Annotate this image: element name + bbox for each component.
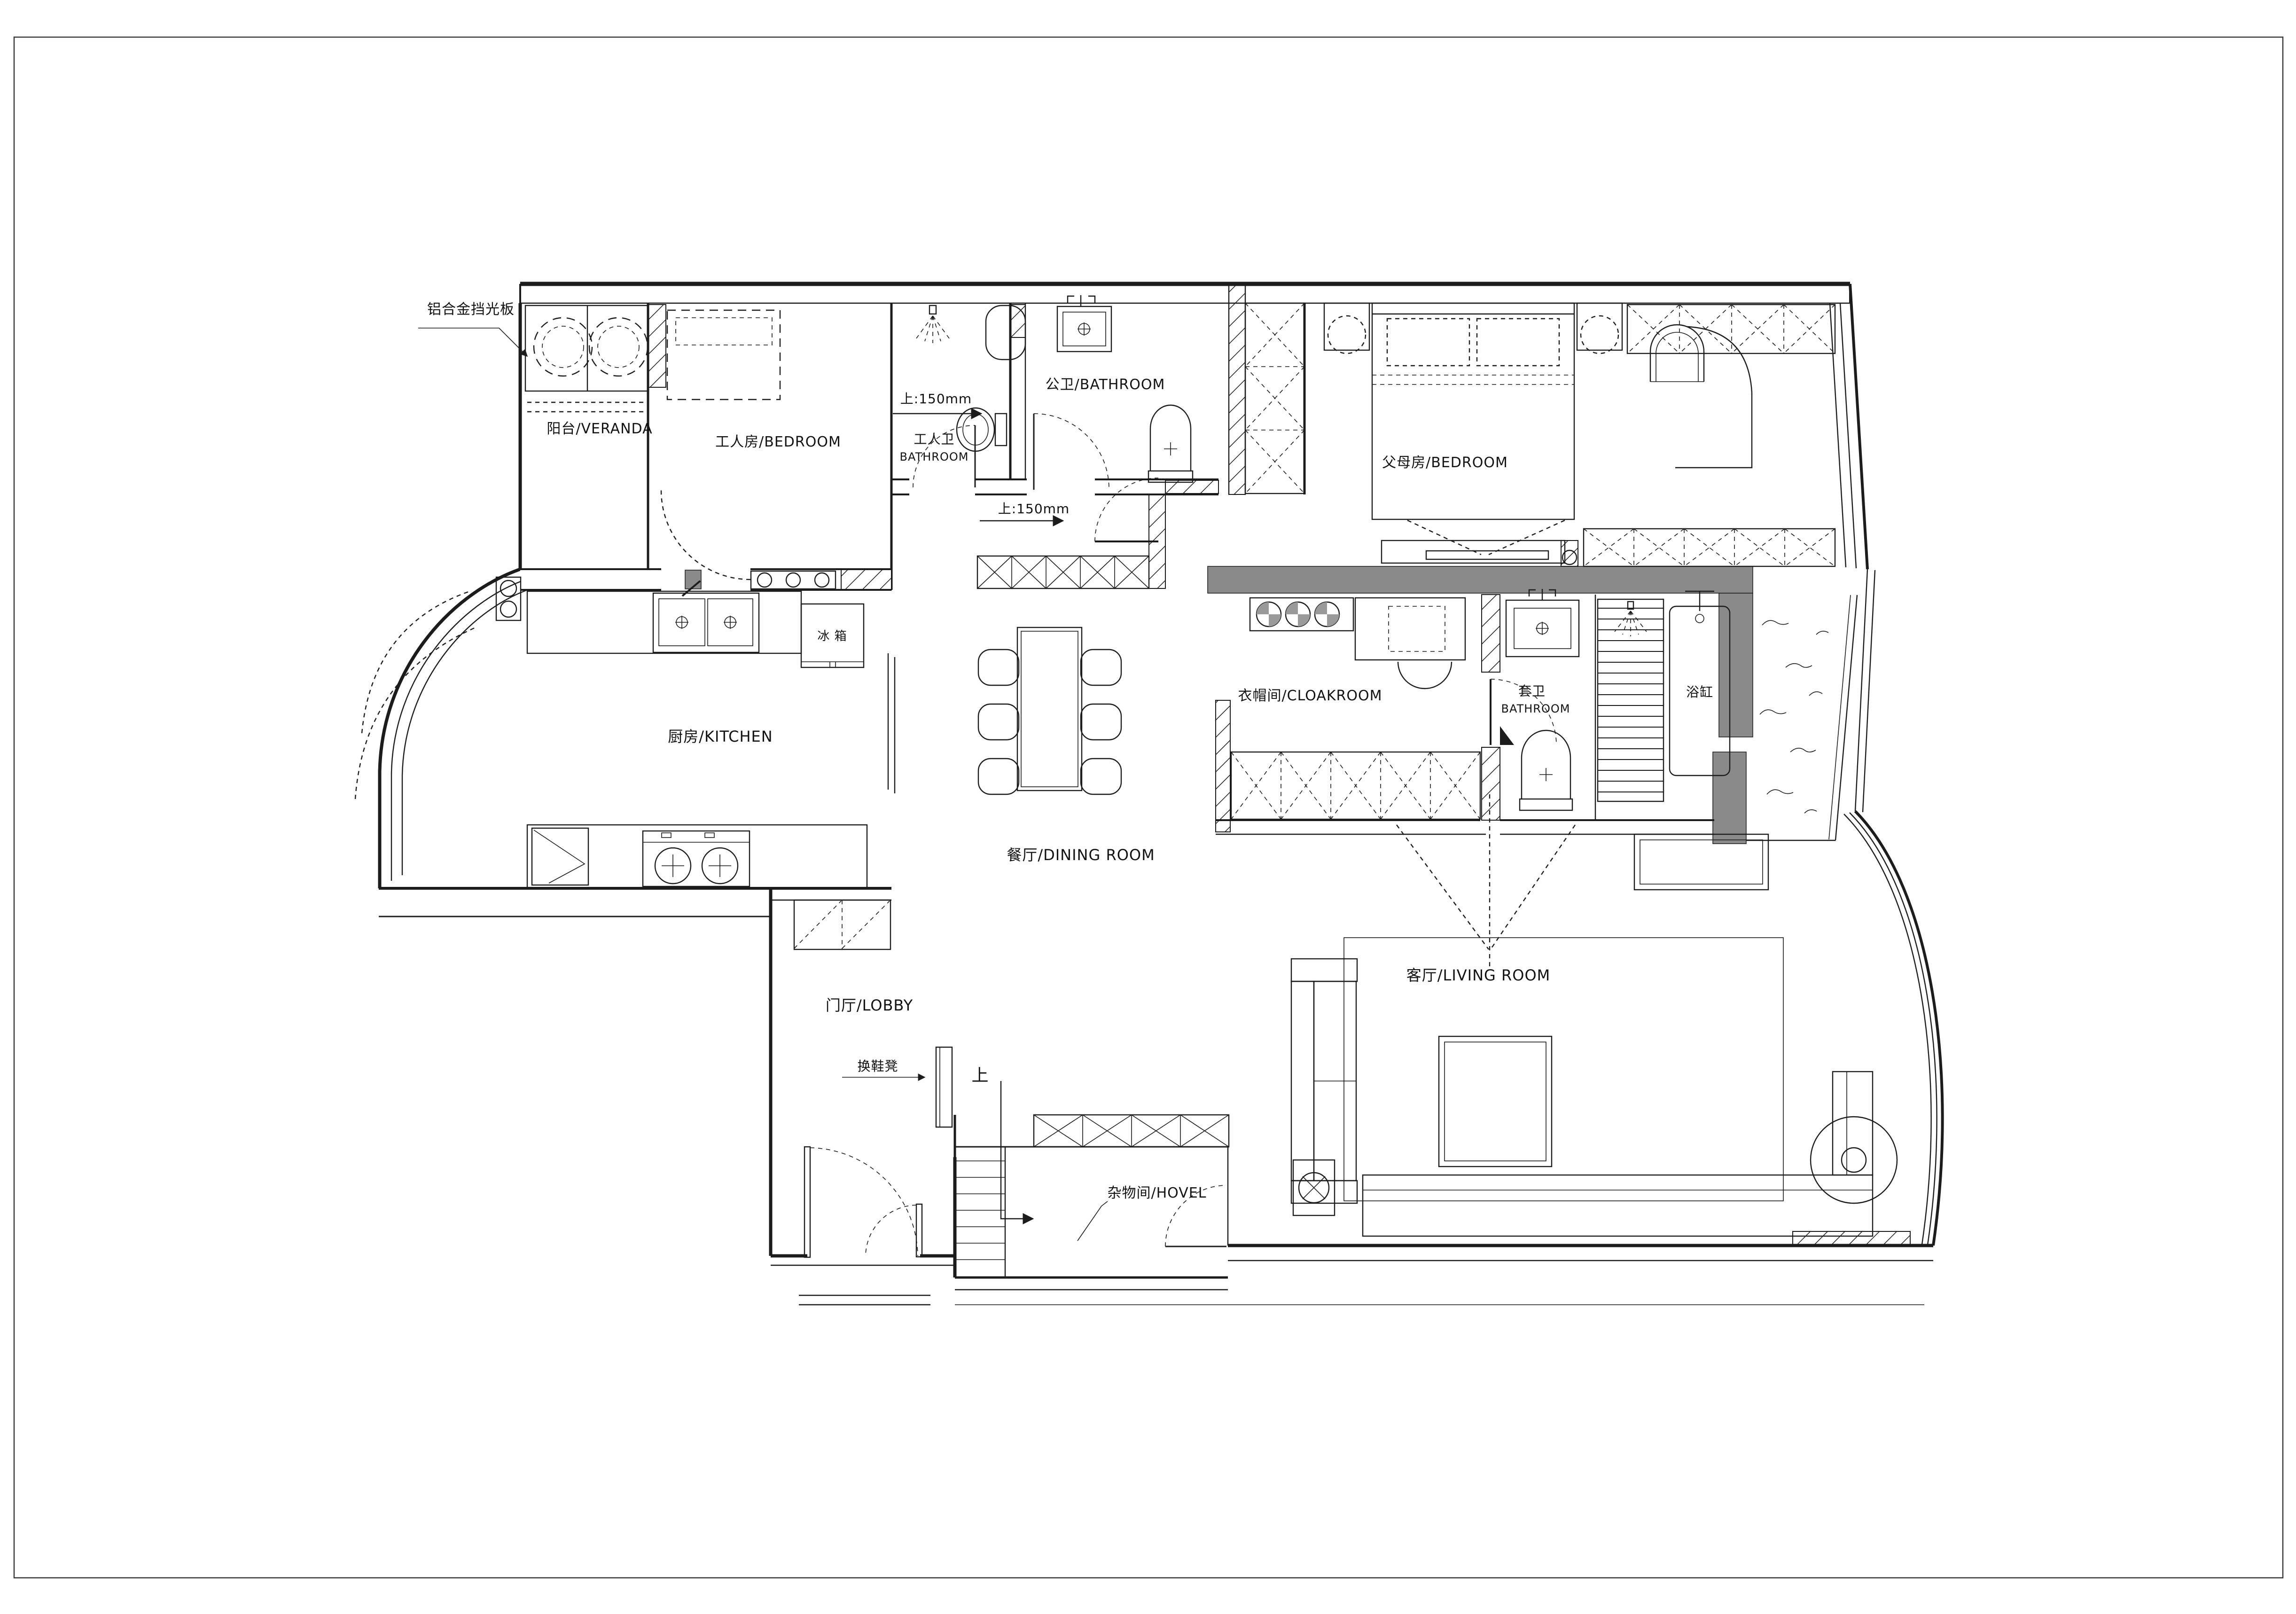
door-swing bbox=[810, 1148, 918, 1256]
closets bbox=[1245, 303, 1835, 566]
label-shoe-bench: 换鞋凳 bbox=[857, 1058, 898, 1074]
dining-room bbox=[977, 556, 1149, 794]
label-step-hall: 上:150mm bbox=[998, 501, 1070, 517]
label-step-bath: 上:150mm bbox=[900, 391, 972, 407]
tv-icon bbox=[1426, 551, 1548, 559]
pebble-texture bbox=[1760, 620, 1828, 813]
label-fridge: 冰 箱 bbox=[817, 629, 847, 643]
label-worker-bedroom: 工人房/BEDROOM bbox=[715, 434, 841, 450]
sofa-left bbox=[1291, 959, 1357, 1203]
sliding-door bbox=[888, 653, 895, 793]
lamp-icon bbox=[1328, 316, 1366, 353]
dining-chairs bbox=[978, 650, 1121, 794]
coffee-table-icon bbox=[1439, 1036, 1552, 1167]
label-cloakroom: 衣帽间/CLOAKROOM bbox=[1238, 688, 1382, 704]
stair-treads bbox=[955, 1161, 1005, 1260]
poche-wall-horizontal bbox=[1208, 566, 1753, 593]
pillow bbox=[1477, 319, 1559, 366]
label-veranda: 阳台/VERANDA bbox=[547, 421, 652, 437]
nightstand bbox=[1324, 303, 1369, 350]
tv-sightlines bbox=[1407, 520, 1565, 555]
label-hovel: 杂物间/HOVEL bbox=[1108, 1185, 1207, 1201]
double-sink-icon bbox=[653, 593, 759, 652]
shower-head-icon bbox=[929, 306, 936, 314]
label-public-bath: 公卫/BATHROOM bbox=[1046, 376, 1165, 393]
stool-icon bbox=[1398, 662, 1452, 689]
wardrobe bbox=[1627, 305, 1835, 353]
dining-table-icon bbox=[1017, 627, 1082, 791]
toilet-icon bbox=[1522, 730, 1570, 799]
double-bed-icon bbox=[1372, 303, 1574, 519]
downlight-icon bbox=[500, 580, 516, 596]
balcony-sill bbox=[1793, 1231, 1910, 1246]
shoe-bench bbox=[936, 1047, 952, 1127]
mirror bbox=[1389, 606, 1445, 651]
single-bed-icon bbox=[667, 310, 780, 400]
wardrobe bbox=[1584, 529, 1835, 566]
stairs-hovel bbox=[955, 1081, 1229, 1277]
counter-downlights bbox=[1257, 602, 1339, 627]
label-worker-bath-cn: 工人卫 bbox=[914, 431, 954, 447]
sheet-border bbox=[14, 37, 2283, 1578]
parents-bedroom bbox=[1095, 303, 1752, 564]
balcony-curved bbox=[1793, 1117, 1910, 1246]
lobby bbox=[794, 900, 952, 1305]
counter bbox=[527, 825, 867, 888]
ensuite-bathroom bbox=[1506, 589, 1579, 810]
desk-nook bbox=[1675, 327, 1752, 468]
label-up: 上 bbox=[971, 1066, 989, 1085]
door-swing bbox=[1034, 414, 1109, 489]
tv-console bbox=[1634, 834, 1768, 890]
shade-panel-leader bbox=[418, 328, 527, 356]
label-kitchen: 厨房/KITCHEN bbox=[668, 728, 773, 745]
lamp-icon bbox=[1581, 316, 1618, 353]
label-parents-bedroom: 父母房/BEDROOM bbox=[1382, 454, 1508, 471]
room-labels: 铝合金挡光板 阳台/VERANDA 工人房/BEDROOM 上:150mm 工人… bbox=[427, 301, 1713, 1201]
label-bathtub: 浴缸 bbox=[1686, 684, 1713, 700]
toilet-icon bbox=[1150, 405, 1191, 471]
drawing-sheet: 铝合金挡光板 阳台/VERANDA 工人房/BEDROOM 上:150mm 工人… bbox=[0, 0, 2296, 1614]
label-lobby: 门厅/LOBBY bbox=[826, 996, 913, 1014]
dressing-table bbox=[1355, 598, 1465, 660]
door-swing bbox=[866, 1205, 916, 1256]
label-ensuite-cn: 套卫 bbox=[1518, 683, 1546, 699]
label-worker-bath-en: BATHROOM bbox=[900, 450, 969, 463]
nightstand bbox=[1577, 303, 1622, 350]
label-ensuite-en: BATHROOM bbox=[1501, 702, 1570, 715]
poche-wall-vertical bbox=[1719, 593, 1753, 737]
floor-plan-svg: 铝合金挡光板 阳台/VERANDA 工人房/BEDROOM 上:150mm 工人… bbox=[0, 0, 2296, 1614]
downlight-icon bbox=[500, 601, 516, 617]
label-living: 客厅/LIVING ROOM bbox=[1406, 966, 1551, 984]
label-shade-panel: 铝合金挡光板 bbox=[427, 301, 515, 318]
label-dining: 餐厅/DINING ROOM bbox=[1007, 846, 1155, 864]
counter bbox=[527, 591, 801, 653]
entry-step bbox=[799, 1295, 930, 1305]
door-swing bbox=[661, 490, 750, 580]
hovel-leader bbox=[1078, 1201, 1108, 1241]
pillow bbox=[1387, 319, 1469, 366]
living-room bbox=[1291, 794, 1873, 1236]
cloakroom bbox=[1231, 598, 1480, 819]
entry-door-leaf bbox=[804, 1147, 810, 1257]
